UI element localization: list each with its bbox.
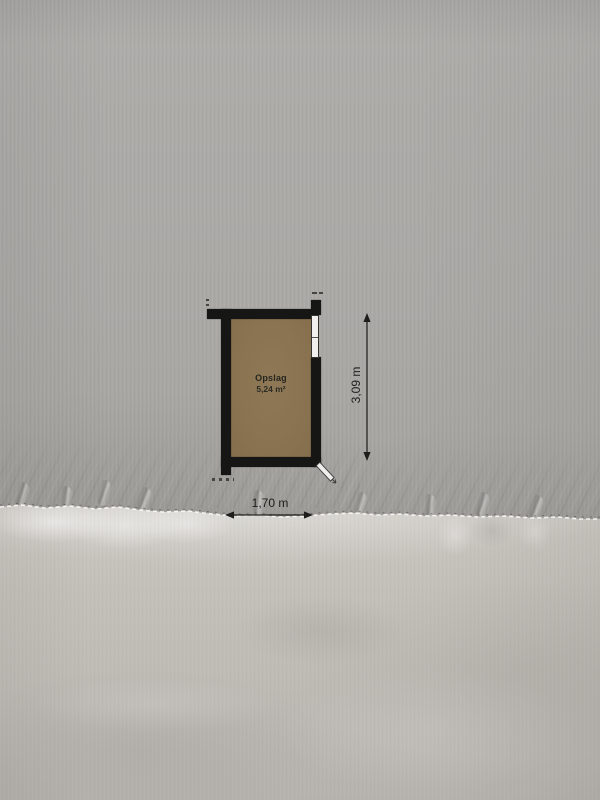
width-dimension-label: 1,70 m — [234, 496, 306, 510]
floor-plan: Opslag 5,24 m² 3,09 m 1,70 m — [0, 0, 600, 800]
room-area-label: 5,24 m² — [231, 384, 311, 394]
wall-left — [221, 309, 231, 475]
width-dimension-arrow — [225, 509, 313, 521]
dimension-tick-bottom-left — [212, 478, 234, 481]
dimension-tick-top-right — [312, 292, 317, 294]
photo-of-paper: Opslag 5,24 m² 3,09 m 1,70 m — [0, 0, 600, 800]
height-dimension-label: 3,09 m — [349, 355, 365, 415]
window-mullion-tick — [312, 337, 318, 338]
window-symbol — [311, 315, 319, 358]
door-swing-symbol — [312, 459, 346, 491]
dimension-tick-top-left — [206, 304, 209, 306]
dimension-tick-top-right — [319, 292, 323, 294]
room-name-label: Opslag — [231, 373, 311, 383]
wall-right — [311, 357, 321, 467]
wall-pier-top-right — [311, 300, 321, 315]
dimension-tick-top-left — [206, 299, 209, 301]
wall-bottom — [221, 457, 321, 467]
